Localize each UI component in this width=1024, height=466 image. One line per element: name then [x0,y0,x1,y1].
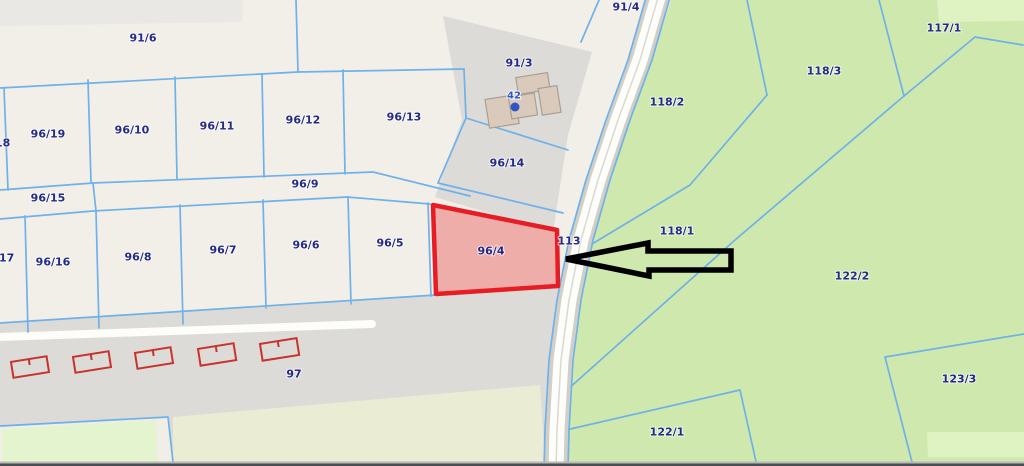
parcel-label-96-5: 96/5 [377,237,404,250]
parcel-label-96-8: 96/8 [125,251,152,264]
parcel-label-96-19: 96/19 [31,128,66,141]
parcel-label-96-14: 96/14 [490,157,525,170]
parcel-label-96-4: 96/4 [478,245,505,258]
parcel-label-91-4: 91/4 [613,1,640,14]
parcel-label-96-7: 96/7 [210,244,237,257]
parcel-label-96-11: 96/11 [200,120,235,133]
bottom-band-light [0,462,1024,464]
parcel-label-118-1: 118/1 [660,225,695,238]
parcel-label-96-13: 96/13 [387,111,422,124]
parcel-label-97: 97 [286,368,301,381]
parcel-label-122-1: 122/1 [650,426,685,439]
light-green-patch-bottom-right [927,432,1024,457]
house-number-label: 42 [507,91,521,102]
building [538,86,561,116]
parcel-label-118-2: 118/2 [650,96,685,109]
parcel-label-96-15: 96/15 [31,192,66,205]
parcel-label-96-12: 96/12 [286,114,321,127]
parcel-label-96-17: 96/17 [0,252,14,265]
parcel-label-113: 113 [558,235,581,248]
road-band-top-left [0,0,243,26]
cadastral-map[interactable]: 42 91/696/1996/1096/1196/1296/1396/1896/… [0,0,1024,466]
parcel-label-117-1: 117/1 [927,22,962,35]
parcel-label-96-6: 96/6 [293,239,320,252]
house-marker-dot [511,103,520,112]
parcel-label-118-3: 118/3 [807,65,842,78]
parcel-label-96-10: 96/10 [115,124,150,137]
parcel-label-123-3: 123/3 [942,373,977,386]
parcel-label-91-3: 91/3 [506,57,533,70]
parcel-label-91-6: 91/6 [130,32,157,45]
parcel-label-96-18: 96/18 [0,137,10,150]
parcel-label-122-2: 122/2 [835,270,870,283]
parcel-label-96-16: 96/16 [36,256,71,269]
light-green-patch-top-right [937,0,1024,22]
parcel-label-96-9: 96/9 [292,178,319,191]
